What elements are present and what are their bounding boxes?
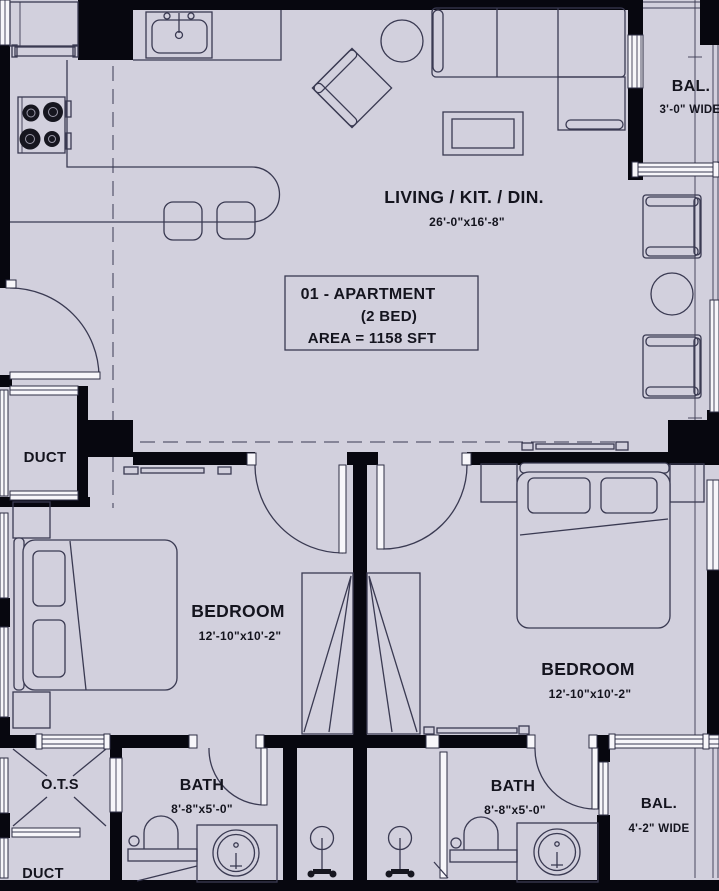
title-line3: AREA = 1158 SFT	[308, 330, 437, 347]
bath-right-dims: 8'-8"x5'-0"	[484, 803, 546, 817]
bath-left-dims: 8'-8"x5'-0"	[171, 802, 233, 816]
balcony-bottom-dims: 4'-2" WIDE	[628, 823, 689, 835]
bed-icon	[517, 463, 670, 628]
living-dims: 26'-0"x16'-8"	[429, 215, 505, 229]
title-line1: 01 - APARTMENT	[301, 286, 436, 303]
bath-left-label: BATH	[180, 777, 224, 794]
duct-bottom-label: DUCT	[22, 866, 63, 882]
bedroom-right-dims: 12'-10"x10'-2"	[549, 687, 632, 701]
bedroom-left-label: BEDROOM	[191, 601, 285, 621]
duct-mid-label: DUCT	[24, 449, 67, 466]
stove-icon	[18, 97, 71, 153]
balcony-top-dims: 3'-0" WIDE	[659, 104, 719, 116]
living-label: LIVING / KIT. / DIN.	[384, 187, 544, 207]
balcony-bottom-label: BAL.	[641, 795, 677, 812]
bed-icon	[14, 538, 177, 690]
balcony-top-label: BAL.	[672, 78, 711, 95]
floor-plan: 01 - APARTMENT (2 BED) AREA = 1158 SFT L…	[0, 0, 719, 891]
bath-right-label: BATH	[491, 778, 535, 795]
bedroom-right-label: BEDROOM	[541, 659, 635, 679]
ots-label: O.T.S	[41, 777, 79, 793]
bedroom-left-dims: 12'-10"x10'-2"	[199, 629, 282, 643]
title-line2: (2 BED)	[361, 308, 417, 325]
